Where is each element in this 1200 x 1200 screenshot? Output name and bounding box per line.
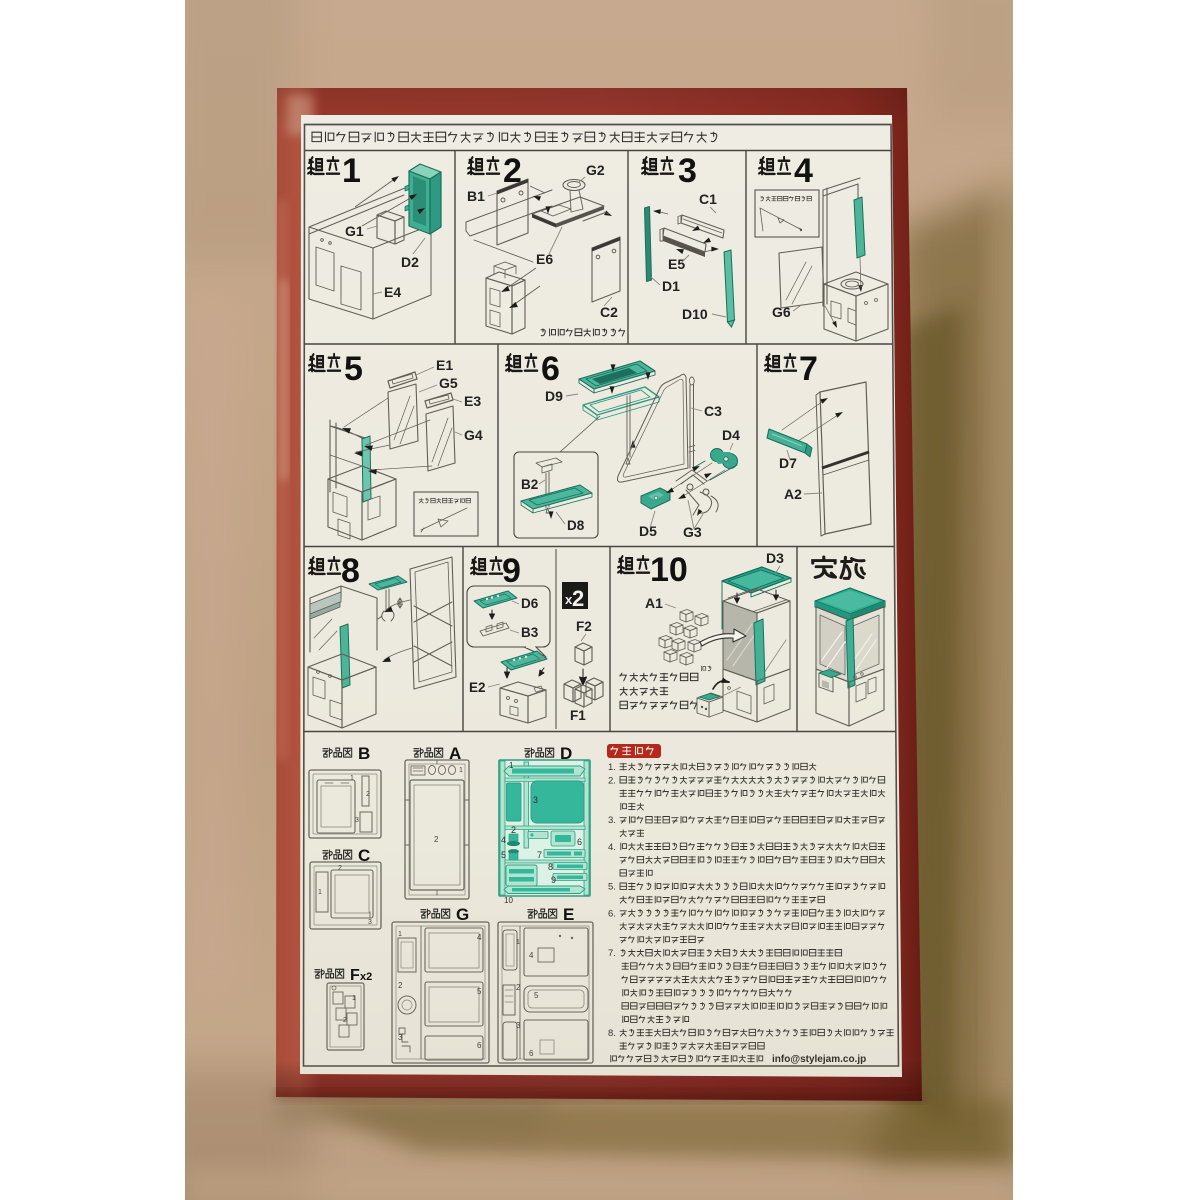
svg-text:3: 3 <box>368 919 372 926</box>
svg-text:G: G <box>456 905 469 924</box>
svg-text:3: 3 <box>355 817 359 824</box>
svg-text:B: B <box>358 744 370 763</box>
svg-text:10: 10 <box>504 896 513 905</box>
svg-text:E2: E2 <box>469 680 486 695</box>
svg-text:D5: D5 <box>639 523 657 539</box>
svg-text:2: 2 <box>338 865 342 872</box>
svg-text:3: 3 <box>398 1033 403 1042</box>
svg-text:G4: G4 <box>464 427 483 443</box>
svg-text:5: 5 <box>344 350 363 388</box>
svg-text:8.: 8. <box>608 1028 616 1039</box>
svg-text:8: 8 <box>548 862 553 872</box>
svg-text:E: E <box>563 905 574 924</box>
svg-text:4.: 4. <box>608 842 616 853</box>
svg-text:D4: D4 <box>722 427 740 443</box>
svg-text:D2: D2 <box>401 254 419 270</box>
svg-text:C2: C2 <box>600 304 618 320</box>
svg-text:1.: 1. <box>608 762 616 773</box>
svg-text:2: 2 <box>366 791 370 798</box>
svg-text:2: 2 <box>516 983 521 992</box>
svg-text:7: 7 <box>799 350 818 388</box>
svg-text:G5: G5 <box>439 375 458 391</box>
svg-text:6.: 6. <box>608 908 616 919</box>
svg-text:E4: E4 <box>384 284 401 300</box>
svg-text:2: 2 <box>572 586 584 611</box>
svg-text:B3: B3 <box>521 625 539 640</box>
svg-text:2: 2 <box>511 825 516 835</box>
svg-text:5: 5 <box>477 987 482 996</box>
svg-text:7: 7 <box>537 850 542 860</box>
svg-text:info@stylejam.co.jp: info@stylejam.co.jp <box>772 1054 866 1065</box>
svg-text:C3: C3 <box>704 403 722 419</box>
svg-text:G6: G6 <box>772 304 791 320</box>
svg-text:D1: D1 <box>662 278 680 294</box>
svg-text:2.: 2. <box>608 775 616 786</box>
svg-text:5.: 5. <box>608 882 616 893</box>
svg-text:3: 3 <box>678 152 697 190</box>
svg-text:3: 3 <box>533 795 538 805</box>
svg-text:D8: D8 <box>567 518 585 533</box>
svg-text:B1: B1 <box>467 188 485 204</box>
svg-text:E6: E6 <box>536 251 553 267</box>
svg-text:G1: G1 <box>345 223 364 239</box>
svg-text:8: 8 <box>341 552 360 590</box>
svg-text:2: 2 <box>343 1017 347 1024</box>
svg-text:9: 9 <box>502 552 521 590</box>
svg-text:G2: G2 <box>586 162 605 178</box>
svg-text:G3: G3 <box>683 524 702 540</box>
svg-text:6: 6 <box>577 837 582 847</box>
svg-text:F: F <box>350 967 360 984</box>
svg-text:F2: F2 <box>576 619 592 634</box>
svg-text:9: 9 <box>551 875 556 885</box>
svg-text:E3: E3 <box>464 393 481 409</box>
svg-text:C1: C1 <box>699 191 717 207</box>
svg-text:7.: 7. <box>608 948 616 959</box>
svg-text:1: 1 <box>342 152 361 190</box>
svg-text:x2: x2 <box>360 971 372 983</box>
svg-text:10: 10 <box>650 551 688 589</box>
svg-text:1: 1 <box>352 995 356 1002</box>
svg-text:1: 1 <box>459 767 463 774</box>
svg-text:1: 1 <box>516 939 520 946</box>
svg-text:F1: F1 <box>570 708 586 723</box>
svg-text:4: 4 <box>501 835 506 845</box>
svg-text:3: 3 <box>516 1021 521 1030</box>
svg-text:4: 4 <box>529 951 534 960</box>
svg-text:4: 4 <box>794 152 813 190</box>
svg-text:E1: E1 <box>436 357 453 373</box>
svg-text:1: 1 <box>318 889 322 896</box>
svg-text:2: 2 <box>398 981 403 990</box>
svg-text:D7: D7 <box>779 455 797 471</box>
svg-text:1: 1 <box>350 775 354 782</box>
svg-text:5: 5 <box>501 850 506 860</box>
svg-text:1: 1 <box>509 761 514 770</box>
svg-text:6: 6 <box>529 1049 534 1058</box>
svg-text:A2: A2 <box>784 486 802 502</box>
svg-text:A1: A1 <box>645 595 663 611</box>
svg-text:6: 6 <box>541 350 560 388</box>
svg-text:2: 2 <box>434 835 439 844</box>
svg-text:1: 1 <box>398 931 402 938</box>
svg-text:D9: D9 <box>545 388 563 404</box>
svg-text:4: 4 <box>477 933 482 942</box>
svg-text:6: 6 <box>477 1041 482 1050</box>
svg-text:3.: 3. <box>608 815 616 826</box>
svg-text:5: 5 <box>534 991 539 1000</box>
svg-text:B2: B2 <box>521 477 538 492</box>
svg-text:D10: D10 <box>682 306 708 322</box>
svg-text:D6: D6 <box>521 596 539 611</box>
svg-text:D3: D3 <box>766 550 784 566</box>
svg-text:E5: E5 <box>668 256 685 272</box>
